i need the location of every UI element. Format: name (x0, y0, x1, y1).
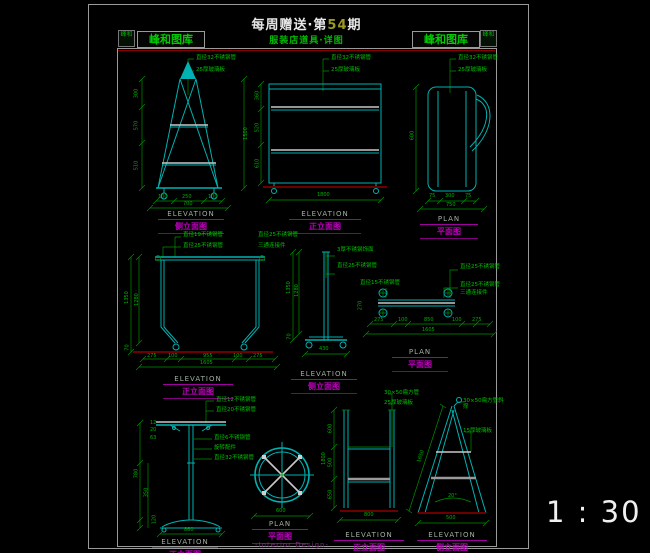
caption-cn: 侧立面图 (417, 542, 487, 553)
dimension-text: 430 (319, 347, 329, 352)
dimension-text: 1605 (422, 328, 435, 333)
drawing-rack-plan: 直径32不锈钢管 25厚玻璃板 600 75 300 75 750 PLAN 平… (400, 55, 512, 235)
leader-label: 直径25不锈钢管 (460, 264, 500, 270)
dimension-text: 860 (184, 528, 194, 533)
caption: ELEVATION 侧立面图 (158, 210, 224, 234)
caption: ELEVATION 侧立面图 (417, 531, 487, 553)
leader-label: 25厚玻璃板 (331, 67, 360, 73)
cad-sheet: 每周赠送·第54期 服装店道具·详图 峰和 峰和图库 峰和图库 峰和 直径32不… (0, 0, 650, 553)
dimension-text: 500 (328, 458, 333, 468)
leader-label: 直径20不锈钢管 (216, 407, 256, 413)
drawing-hrack-front-elevation: 30×50扁方管 25厚玻璃板 600 500 650 1800 800 ELE… (328, 390, 414, 553)
leader-label: 直径19不锈钢管 (183, 232, 223, 238)
dimension-text: 100 (398, 318, 408, 323)
dimension-text: 600 (328, 424, 333, 434)
dimension-text: 275 (147, 354, 157, 359)
leader-label: 直径32不锈钢管 (458, 55, 498, 61)
dimension-text: 570 (134, 121, 139, 131)
caption-en: ELEVATION (163, 375, 233, 385)
dimension-text: 600 (410, 131, 415, 141)
dimension-text: 20° (448, 494, 457, 499)
hrack-front-art (328, 390, 414, 548)
dimension-text: 510 (134, 161, 139, 171)
drawing-shelf-front-elevation: 直径32不锈钢管 25厚玻璃板 360 520 610 1800 ELEVATI… (255, 55, 395, 235)
caption: PLAN 平面图 (392, 348, 448, 372)
dimension-text: 955 (203, 354, 213, 359)
dimension-text: 100 (452, 318, 462, 323)
leader-label: 直径25不锈钢管 (183, 243, 223, 249)
dimension-text: 275 (253, 354, 263, 359)
dimension-text: 100 (158, 195, 168, 200)
dimension-text: 780 (134, 469, 139, 479)
dimension-text: 275 (472, 318, 482, 323)
dimension-text: 20 (150, 428, 156, 433)
caption-en: PLAN (392, 348, 448, 358)
leader-label: 直径25不锈钢管 (460, 282, 500, 288)
caption-cn: 平面图 (392, 359, 448, 372)
dimension-text: 1800 (317, 193, 330, 198)
drawing-xrack-side-elevation: 直径32不锈钢管 25厚玻璃板 300 570 510 1500 100 250… (130, 55, 252, 235)
dimension-text: 75 (465, 194, 471, 199)
drawing-rail-side-elevation: 3厚不锈钢饰面 直径25不锈钢管 1350 1280 70 430 ELEVAT… (285, 230, 363, 392)
leader-label: 直径12不锈钢管 (216, 397, 256, 403)
title-suffix: 期 (348, 18, 362, 33)
drawing-table-elevation: 直径12不锈钢管 直径20不锈钢管 直径6不锈钢管 旋转配件 直径32不锈钢管 … (110, 395, 245, 553)
dimension-text: 1800 (322, 452, 327, 465)
dimension-text: 650 (328, 490, 333, 500)
drawing-rail-plan: 直径15不锈钢管 直径25不锈钢管 直径25不锈钢管 三通连接件 270 275… (360, 240, 502, 375)
logo-text-left: 峰和图库 (137, 31, 205, 48)
title-prefix: 每周赠送·第 (251, 18, 327, 33)
dimension-text: 70 (126, 344, 131, 350)
dimension-text: 1350 (125, 291, 130, 304)
drawing-tabletop-plan: 600 PLAN 平面图 (238, 428, 336, 550)
drawing-rail-front-elevation: 直径19不锈钢管 直径25不锈钢管 直径25不锈钢管 三通连接件 1350 12… (115, 235, 281, 397)
dimension-text: 520 (255, 123, 260, 133)
dimension-text: 12 (150, 421, 156, 426)
drawing-aframe-side-elevation: 30×50扁方管斜撑 15厚玻璃板 1650 20° 500 ELEVATION… (405, 390, 505, 553)
caption-en: ELEVATION (289, 210, 361, 220)
caption: ELEVATION 正立面图 (334, 531, 404, 553)
leader-label: 25厚玻璃板 (196, 67, 225, 73)
dimension-text: 850 (424, 318, 434, 323)
dimension-text: 800 (364, 513, 374, 518)
caption: PLAN 平面图 (420, 215, 478, 239)
dimension-text: 1605 (200, 361, 213, 366)
leader-label: 15厚玻璃板 (463, 428, 492, 434)
dimension-text: 63 (150, 436, 156, 441)
dimension-text: 1280 (135, 293, 140, 306)
dimension-text: 100 (208, 195, 218, 200)
leader-label: 旋转配件 (214, 445, 236, 451)
dimension-text: 500 (446, 516, 456, 521)
scale-label: 1 : 30 (546, 495, 642, 529)
leader-label: 三通连接件 (258, 243, 286, 249)
dimension-text: 120 (152, 515, 157, 525)
shelf-front-art (255, 55, 395, 211)
dimension-text: 700 (183, 202, 193, 207)
header-rule (118, 50, 495, 51)
dimension-text: 270 (358, 301, 363, 311)
dimension-text: 350 (144, 488, 149, 498)
table-elevation-art (110, 395, 245, 537)
caption-en: ELEVATION (291, 370, 357, 380)
logo-icon-right: 峰和 (480, 30, 497, 47)
title-issue-number: 54 (327, 18, 347, 33)
dimension-text: 360 (255, 91, 260, 101)
dimension-text: 70 (288, 333, 293, 339)
leader-label: 直径32不锈钢管 (196, 55, 236, 61)
dimension-text: 610 (255, 159, 260, 169)
dimension-text: 1500 (244, 127, 249, 140)
dimension-text: 1350 (287, 281, 292, 294)
dimension-text: 600 (276, 509, 286, 514)
logo-icon-left: 峰和 (118, 30, 135, 47)
caption-en: PLAN (420, 215, 478, 225)
leader-label: 直径15不锈钢管 (360, 280, 400, 286)
designer-signature: -Interior Design- (255, 541, 329, 549)
dimension-text: 300 (134, 89, 139, 99)
dimension-text: 275 (374, 318, 384, 323)
dimension-text: 750 (446, 203, 456, 208)
caption-cn: 正立面图 (334, 542, 404, 553)
xrack-side-art (130, 55, 252, 211)
caption-en: ELEVATION (334, 531, 404, 541)
leader-label: 直径32不锈钢管 (331, 55, 371, 61)
caption-en: ELEVATION (158, 210, 224, 220)
dimension-text: 100 (168, 354, 178, 359)
dimension-text: 250 (182, 195, 192, 200)
logo-text-right: 峰和图库 (412, 31, 480, 48)
leader-label: 30×50扁方管斜撑 (463, 398, 505, 410)
caption: ELEVATION 正立面图 (152, 538, 218, 553)
aframe-side-art (405, 390, 505, 548)
caption-cn: 正立面图 (152, 549, 218, 553)
leader-label: 25厚玻璃板 (458, 67, 487, 73)
dimension-text: 75 (429, 194, 435, 199)
dimension-text: 100 (233, 354, 243, 359)
rack-plan-art (400, 55, 512, 213)
rail-front-art (115, 235, 281, 371)
caption-en: ELEVATION (417, 531, 487, 541)
dimension-text: 1280 (295, 284, 300, 297)
leader-label: 三通连接件 (460, 290, 488, 296)
caption-cn: 平面图 (420, 226, 478, 239)
caption-en: ELEVATION (152, 538, 218, 548)
caption-en: PLAN (252, 520, 308, 530)
dimension-text: 300 (445, 194, 455, 199)
